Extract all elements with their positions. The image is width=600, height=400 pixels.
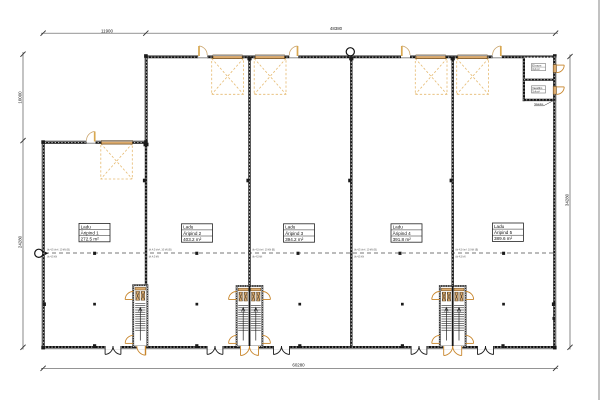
- svg-text:391.8 m²: 391.8 m²: [393, 237, 412, 242]
- svg-text:ük 4,5 kN: ük 4,5 kN: [354, 255, 364, 258]
- svg-text:Veesõlm: Veesõlm: [532, 86, 542, 90]
- svg-text:Ladu: Ladu: [183, 225, 194, 230]
- svg-text:ük 4,5 t/m², 10 kN (B): ük 4,5 t/m², 10 kN (B): [455, 249, 478, 252]
- svg-text:ük 4,5 kN: ük 4,5 kN: [47, 255, 57, 258]
- svg-text:60280: 60280: [292, 362, 305, 367]
- svg-text:3,4 m²: 3,4 m²: [532, 89, 539, 93]
- svg-text:10000: 10000: [17, 91, 22, 104]
- svg-text:Siseuks: Siseuks: [534, 102, 544, 106]
- svg-text:Ladu: Ladu: [393, 225, 404, 230]
- svg-text:El.ruum: El.ruum: [532, 64, 541, 68]
- svg-text:272.5 m²: 272.5 m²: [81, 237, 100, 242]
- svg-text:34280: 34280: [564, 193, 569, 206]
- svg-text:Ladu: Ladu: [285, 225, 296, 230]
- svg-text:11900: 11900: [101, 28, 113, 33]
- svg-text:ük 4,5 t/m², 10 kN (B): ük 4,5 t/m², 10 kN (B): [252, 249, 275, 252]
- svg-text:ük 4,5 t/m², 10 kN (B): ük 4,5 t/m², 10 kN (B): [47, 249, 70, 252]
- svg-text:ük 4,5 kN: ük 4,5 kN: [149, 255, 159, 258]
- svg-text:3,2 m²: 3,2 m²: [532, 67, 539, 71]
- svg-text:ük 4,5 t/m², 10 kN (B): ük 4,5 t/m², 10 kN (B): [354, 249, 377, 252]
- svg-text:Äripind 2: Äripind 2: [183, 230, 202, 236]
- svg-text:Äripind 3: Äripind 3: [285, 230, 304, 236]
- svg-text:394.2 m²: 394.2 m²: [285, 237, 304, 242]
- svg-text:Äripind 4: Äripind 4: [393, 230, 412, 236]
- svg-text:ük 4,5 kN: ük 4,5 kN: [252, 255, 262, 258]
- svg-text:Ladu: Ladu: [81, 224, 92, 229]
- svg-text:24280: 24280: [17, 235, 22, 248]
- svg-text:Äripind 1: Äripind 1: [81, 229, 100, 235]
- svg-text:Ladu: Ladu: [494, 224, 505, 229]
- svg-text:403.2 m²: 403.2 m²: [183, 237, 202, 242]
- svg-text:Äripind 5: Äripind 5: [494, 229, 513, 235]
- svg-text:389.6 m²: 389.6 m²: [494, 236, 513, 241]
- svg-text:ük 4,5 kN: ük 4,5 kN: [455, 255, 465, 258]
- svg-text:ük 4,5 t/m², 10 kN (B): ük 4,5 t/m², 10 kN (B): [149, 249, 172, 252]
- svg-text:48380: 48380: [330, 26, 343, 31]
